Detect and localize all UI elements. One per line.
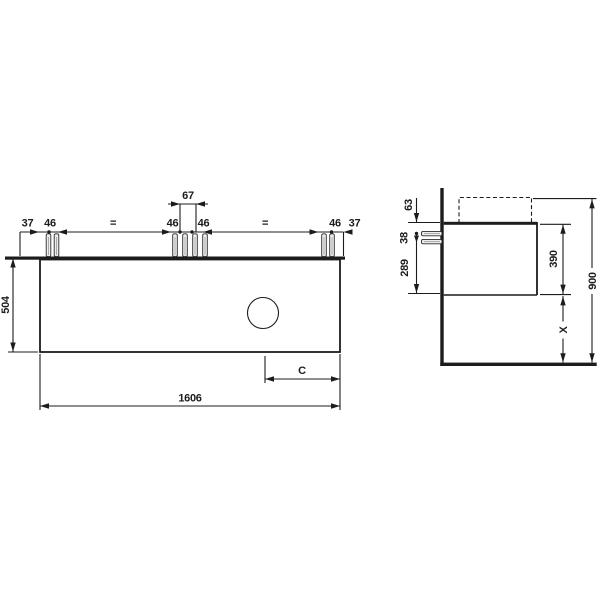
arrowhead-left-icon (58, 229, 67, 234)
dim-center-span-label: 67 (182, 190, 194, 202)
dim-pair-center-right-label: 46 (198, 218, 210, 230)
equal-spacing-left-label: = (110, 218, 116, 230)
arrowhead-left-icon (344, 229, 353, 234)
dimension-top-chain: 37 46 = 46 46 = 46 37 (20, 218, 360, 257)
dim-height-label: 504 (0, 295, 12, 314)
dim-line (8, 258, 38, 352)
dim-edge-right-label: 37 (349, 218, 361, 230)
washbasin-dashed-outline (459, 198, 532, 224)
dim-body-height-label: 390 (548, 250, 560, 268)
dim-edge-left-label: 37 (22, 218, 34, 230)
dim-dot (415, 232, 418, 235)
arrowhead-right-icon (30, 229, 39, 234)
dimension-screw-spacing: 38 (399, 232, 420, 244)
dimension-body-height: 390 (540, 224, 571, 294)
dim-pair-center-left-label: 46 (167, 218, 179, 230)
technical-drawing: 37 46 = 46 46 = 46 37 67 504 (0, 0, 600, 600)
dim-pair-left-label: 46 (44, 218, 56, 230)
drain-hole-circle (248, 298, 279, 329)
dim-dot (330, 230, 333, 233)
arrowhead-left-icon (196, 201, 205, 206)
arrowhead-up-icon (560, 225, 565, 234)
equal-spacing-right-label: = (262, 218, 268, 230)
mounting-screws-front (46, 234, 334, 257)
side-view: 63 38 289 390 X (399, 188, 600, 366)
dimension-top-offset: 63 (403, 198, 440, 223)
dim-total-height-label: 900 (587, 272, 599, 290)
dim-pair-right-label: 46 (329, 218, 341, 230)
arrowhead-up-icon (589, 199, 594, 208)
dim-top-offset-label: 63 (403, 199, 415, 211)
cabinet-top-edge (444, 222, 537, 225)
dim-width-label: 1606 (178, 393, 201, 405)
arrowhead-up-icon (560, 296, 565, 305)
dimension-drain-offset: C (265, 356, 340, 383)
dim-dot (190, 230, 193, 233)
arrowhead-right-icon (331, 403, 340, 408)
front-view: 37 46 = 46 46 = 46 37 67 504 (0, 190, 360, 410)
arrowhead-left-icon (40, 403, 49, 408)
dim-drain-offset-label: C (298, 365, 306, 377)
arrowhead-down-icon (560, 285, 565, 294)
arrowhead-left-icon (265, 376, 274, 381)
dimension-screw-to-bottom: 289 (399, 243, 440, 294)
cabinet-front-outline (40, 260, 340, 353)
dim-screw-spacing-label: 38 (399, 232, 411, 244)
dimension-cabinet-height: 504 (0, 258, 38, 352)
arrowhead-down-icon (10, 343, 15, 352)
arrowhead-down-icon (414, 213, 419, 222)
arrowhead-down-icon (414, 236, 419, 243)
arrowhead-right-icon (331, 376, 340, 381)
arrowhead-down-icon (589, 353, 594, 362)
arrowhead-right-icon (162, 229, 171, 234)
dimension-floor-clearance: X (557, 296, 571, 362)
cabinet-side-outline (444, 222, 537, 295)
dim-screw-to-bottom-label: 289 (399, 259, 411, 277)
arrowhead-down-icon (414, 284, 419, 293)
mounting-screws-side (422, 231, 443, 243)
dim-line (20, 232, 344, 256)
arrowhead-right-icon (310, 229, 319, 234)
wall-line (440, 188, 443, 366)
dim-dot (47, 230, 50, 233)
arrowhead-down-icon (560, 353, 565, 362)
arrowhead-up-icon (10, 259, 15, 268)
dim-line (408, 243, 440, 294)
dimension-cabinet-width: 1606 (40, 354, 340, 410)
arrowhead-right-icon (171, 201, 180, 206)
dim-floor-clearance-label: X (558, 326, 570, 334)
floor-line (440, 363, 596, 366)
screw-detail-lines (49, 237, 333, 255)
